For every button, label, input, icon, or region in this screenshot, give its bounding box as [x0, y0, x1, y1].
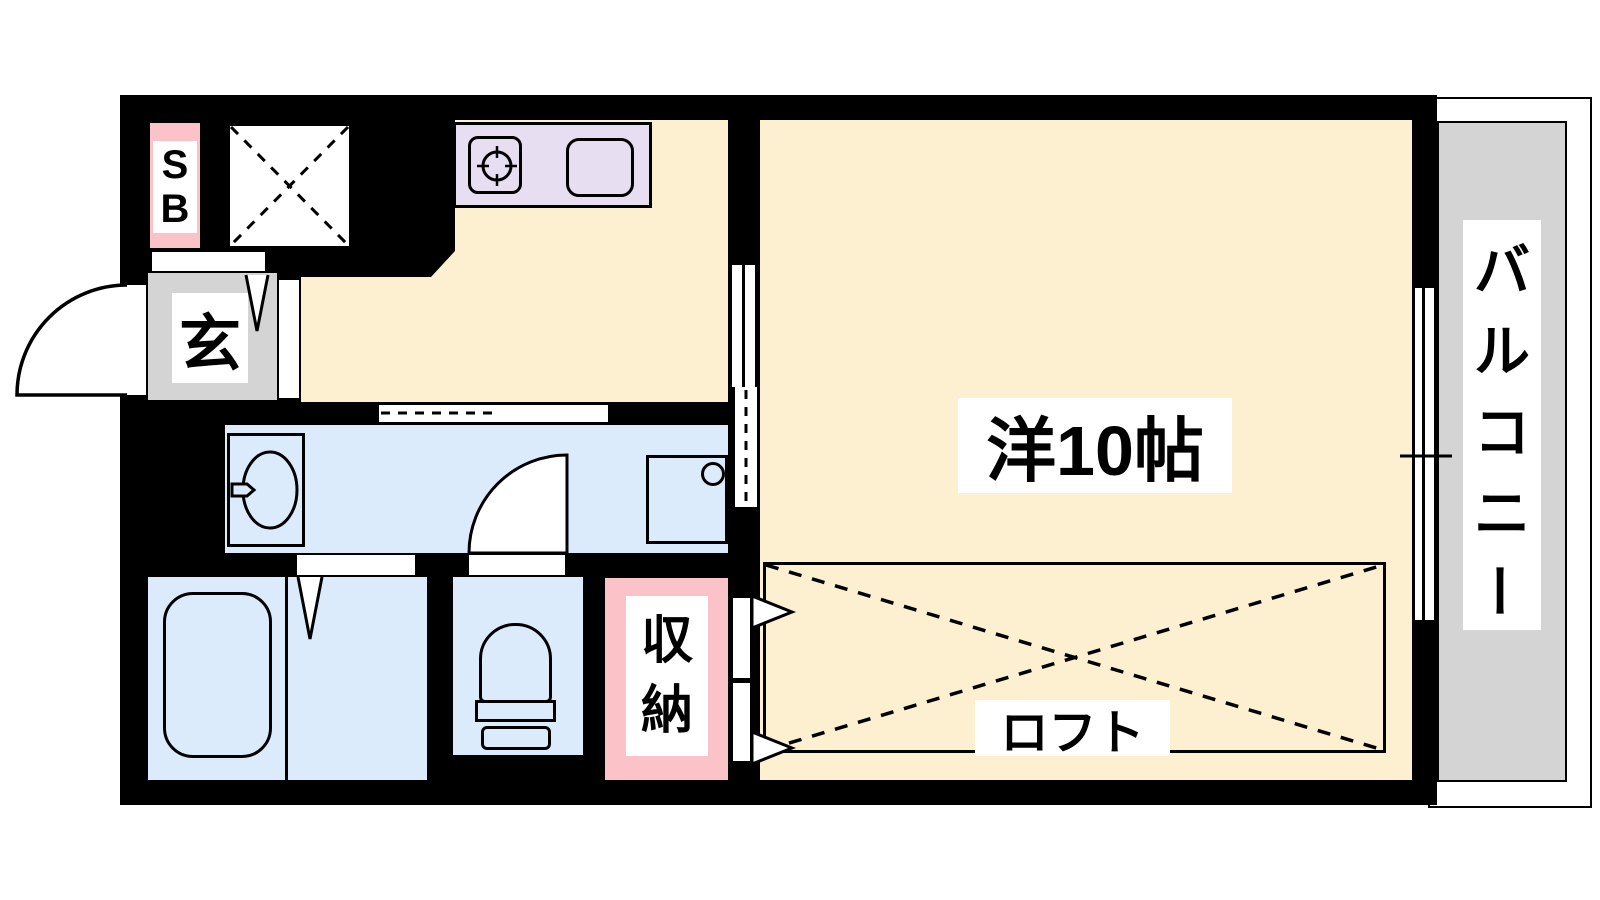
toilet-seat-bar: [475, 700, 556, 722]
opening-pass-hall-main: [735, 387, 757, 507]
toilet-bowl: [479, 623, 552, 703]
shoe-box-label-char: B: [161, 187, 190, 231]
floor-plan: 洋10帖 ロフト 玄 S B 収 納 バ ル コ ニ ー: [0, 0, 1600, 900]
entrance-step: [150, 250, 267, 273]
storage-door-panel-2: [731, 681, 752, 763]
storage-door-panel-1: [731, 596, 752, 680]
toilet-doorway: [467, 553, 567, 577]
shoe-box-label: S B: [153, 141, 197, 233]
bath-doorway: [295, 553, 417, 577]
hallway-floor: [301, 277, 455, 402]
toilet-base: [481, 726, 551, 750]
balcony-label-char: ー: [1462, 563, 1543, 619]
storage-label-char: 収: [641, 606, 693, 676]
storage-label: 収 納: [626, 596, 708, 756]
main-room-label: 洋10帖: [958, 398, 1232, 493]
balcony-label-char: コ: [1474, 388, 1530, 469]
vanity-unit: [227, 433, 305, 547]
loft-label: ロフト: [975, 700, 1170, 756]
balcony-label-char: ル: [1474, 307, 1530, 388]
main-room-label-text: 洋10帖: [986, 395, 1204, 496]
entrance-door-leaf: [125, 283, 148, 397]
entrance-label: 玄: [172, 293, 248, 383]
balcony-window-rail: [1422, 288, 1425, 620]
balcony-label-char: バ: [1474, 226, 1530, 307]
entrance-label-text: 玄: [179, 293, 241, 383]
washing-machine-drain-icon: [701, 462, 725, 486]
storage-label-char: 納: [641, 676, 693, 746]
loft-label-text: ロフト: [1000, 693, 1144, 763]
entrance-door-arc: [17, 285, 127, 395]
wall-block: [352, 120, 455, 277]
opening-doorway: [494, 402, 608, 425]
balcony-label-char: ニ: [1474, 469, 1530, 550]
bathroom-divider: [285, 577, 288, 780]
balcony-label: バ ル コ ニ ー: [1463, 220, 1541, 630]
opening-half-wall: [379, 402, 494, 425]
entrance-inner-doorway: [277, 278, 301, 400]
kitchen-sink-icon: [566, 138, 634, 197]
entry-closet-box: [227, 123, 352, 249]
shoe-box-label-char: S: [162, 143, 189, 187]
stove-icon: [468, 136, 522, 194]
sliding-door-center-rail: [742, 265, 745, 387]
bathtub: [163, 592, 272, 758]
